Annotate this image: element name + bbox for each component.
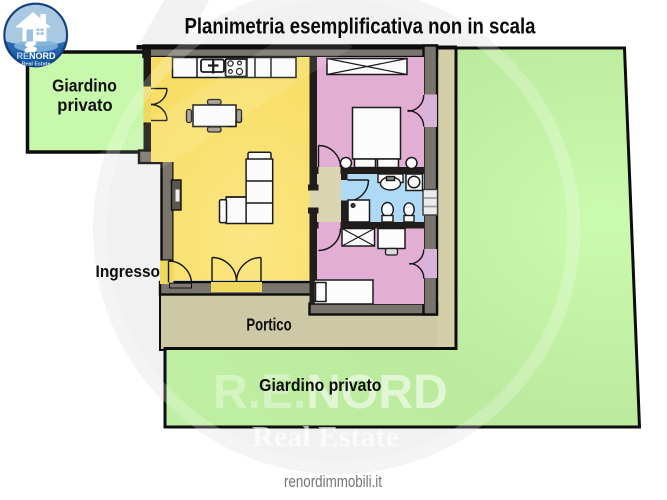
- svg-text:renordimmobili.it: renordimmobili.it: [284, 473, 383, 492]
- svg-text:Giardino privato: Giardino privato: [259, 375, 381, 395]
- svg-text:Portico: Portico: [246, 316, 291, 335]
- svg-text:RENORD: RENORD: [16, 51, 56, 61]
- svg-text:Giardino: Giardino: [52, 76, 117, 96]
- svg-text:Planimetria esemplificativa no: Planimetria esemplificativa non in scala: [184, 14, 535, 39]
- svg-text:Ingresso: Ingresso: [96, 262, 161, 281]
- svg-text:privato: privato: [57, 96, 112, 115]
- svg-text:Real Estate: Real Estate: [252, 422, 399, 453]
- svg-text:Real Estate: Real Estate: [21, 62, 50, 68]
